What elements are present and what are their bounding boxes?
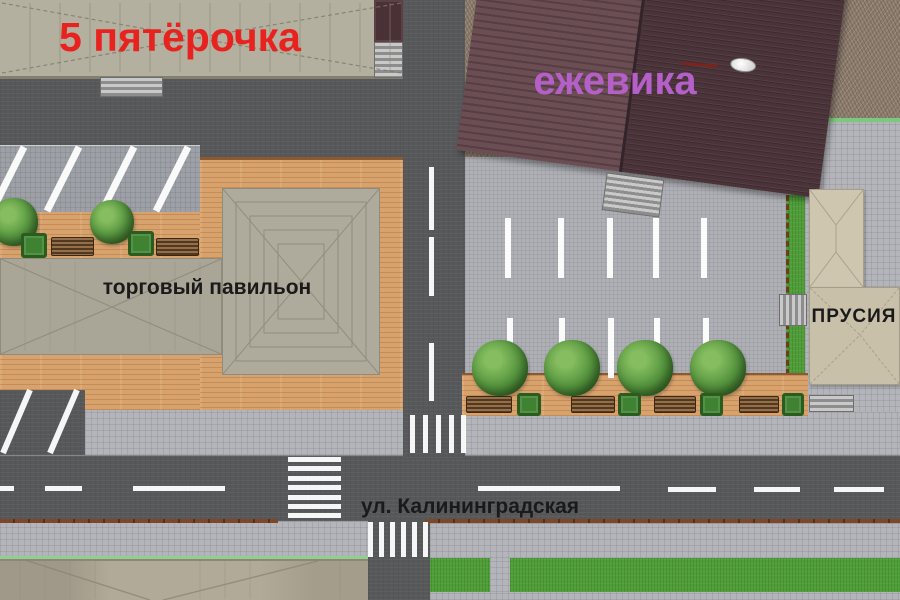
bench (51, 237, 94, 256)
site-plan-canvas: 5 пятёрочка ежевика торговый павильон ПР… (0, 0, 900, 600)
sidewalk-north-right (465, 412, 900, 455)
planter (21, 233, 47, 258)
grass-gap-path (490, 558, 510, 592)
bench (654, 396, 696, 413)
parking-left-lower (0, 390, 85, 455)
building-south-roof (0, 559, 370, 600)
tree (617, 340, 673, 396)
planter (128, 231, 154, 256)
sidewalk-south-left (0, 522, 370, 558)
curb-south-right (425, 519, 900, 523)
fence-grass-strip (786, 195, 805, 375)
grass-south-1 (428, 558, 490, 592)
pavilion-left-roof (0, 258, 222, 355)
label-street-name: ул. Калининградская (338, 496, 602, 518)
tree (544, 340, 600, 396)
building-prusia-roof (809, 287, 900, 385)
fence-gap-stairs (779, 294, 807, 326)
label-trade-pavilion: торговый павильон (87, 277, 327, 299)
tree (690, 340, 746, 396)
curb-south-left (0, 519, 278, 523)
bench (466, 396, 512, 413)
bench (571, 396, 615, 413)
building-prusia-annex-roof (809, 189, 864, 288)
sidewalk-south-right (430, 524, 900, 558)
planter (618, 393, 641, 416)
sidewalk-north-left (85, 410, 403, 455)
annex-stairs (374, 42, 403, 78)
label-ezhevika-store: ежевика (515, 60, 715, 102)
label-pyaterochka-store: 5 пятёрочка (55, 16, 305, 59)
ezhevika-entrance-stairs (602, 172, 665, 217)
sidewalk-bottom (430, 592, 900, 600)
grass-south-2 (510, 558, 900, 592)
pyaterochka-entrance-stairs (100, 77, 163, 97)
tree (472, 340, 528, 396)
building-annex (374, 0, 403, 42)
bench (156, 238, 199, 256)
bench (739, 396, 779, 413)
label-prusia-building: ПРУСИЯ (806, 307, 900, 327)
planter (782, 393, 804, 416)
road-vertical-lower (368, 520, 430, 600)
planter (517, 393, 541, 416)
prusia-entrance-stairs (809, 395, 854, 412)
road-vertical-upper (403, 0, 465, 458)
planter (700, 393, 723, 416)
